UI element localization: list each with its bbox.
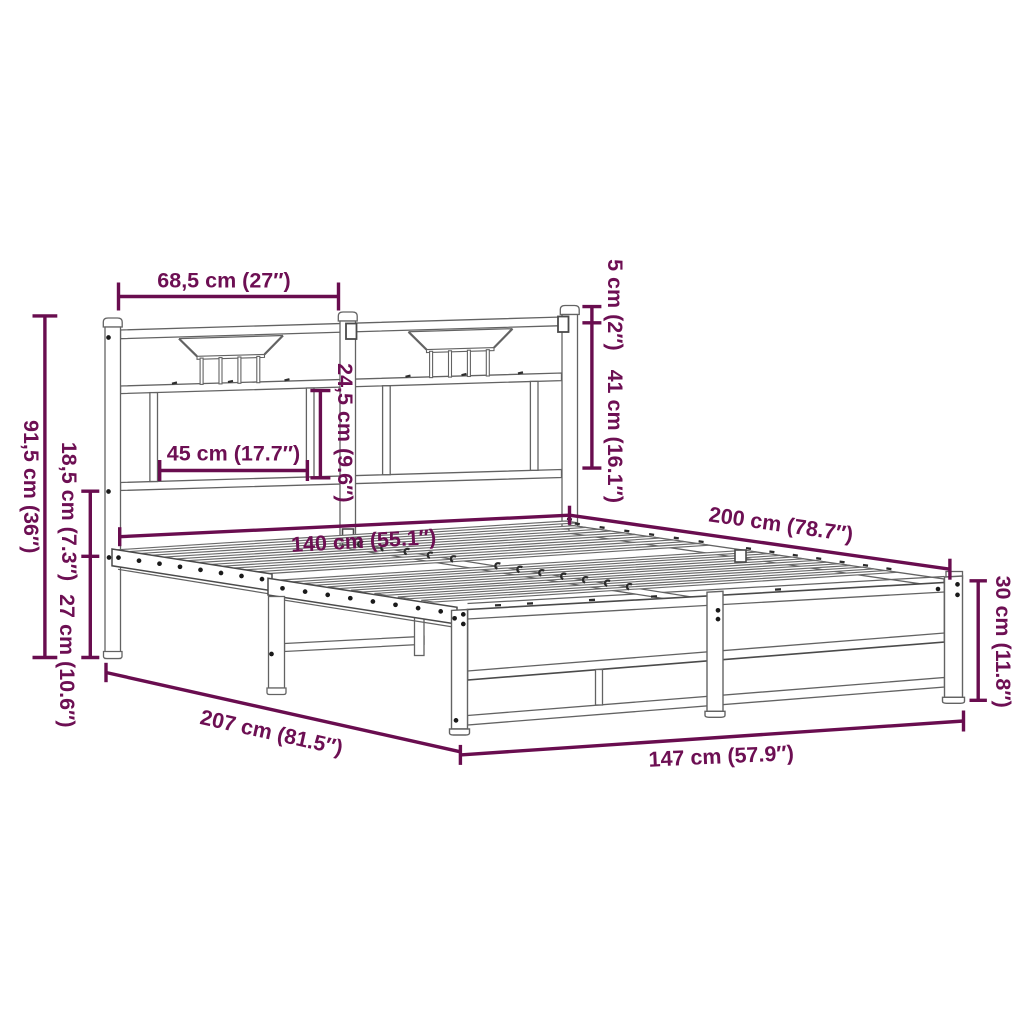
svg-text:200 cm (78.7″): 200 cm (78.7″) <box>707 502 854 546</box>
svg-text:5 cm (2″): 5 cm (2″) <box>603 259 627 351</box>
svg-text:30 cm (11.8″): 30 cm (11.8″) <box>991 576 1015 708</box>
svg-text:27 cm (10.6″): 27 cm (10.6″) <box>55 594 79 727</box>
svg-text:41 cm (16.1″): 41 cm (16.1″) <box>603 370 627 503</box>
svg-text:207 cm (81.5″): 207 cm (81.5″) <box>198 705 345 760</box>
svg-text:18,5 cm (7.3″): 18,5 cm (7.3″) <box>57 442 81 581</box>
svg-text:91,5 cm (36″): 91,5 cm (36″) <box>19 420 43 553</box>
svg-text:147 cm (57.9″): 147 cm (57.9″) <box>648 741 794 772</box>
svg-text:45 cm (17.7″): 45 cm (17.7″) <box>167 442 300 466</box>
svg-text:68,5 cm (27″): 68,5 cm (27″) <box>157 269 290 293</box>
svg-text:24,5 cm (9.6″): 24,5 cm (9.6″) <box>333 363 357 502</box>
